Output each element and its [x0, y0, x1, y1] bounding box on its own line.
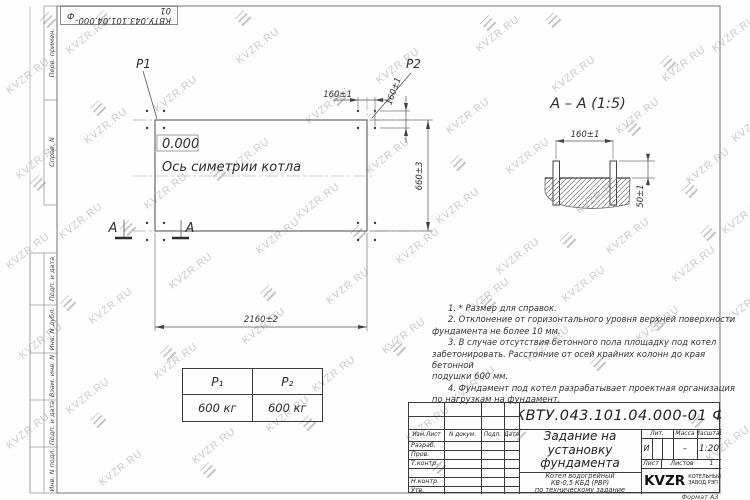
- note-line: 2. Отклонение от горизонтального уровня …: [432, 314, 738, 325]
- technical-notes: 1. * Размер для справок. 2. Отклонение о…: [432, 303, 738, 406]
- row-tkontr: Т.контр.: [411, 459, 444, 468]
- section-letter-right: А: [185, 221, 195, 236]
- row-prov: Пров.: [411, 450, 444, 459]
- doc-title-line3: фундамента: [519, 457, 641, 471]
- elevation-value: 0.000: [162, 137, 199, 152]
- rotated-doc-number-stamp: КВТУ.043.101.04.000-01 Ф: [60, 6, 178, 25]
- stamp-doc-number: КВТУ.043.101.04.000-01: [74, 6, 171, 26]
- company-sub2: ЗАВОД РЭП: [688, 481, 721, 487]
- load-table: P₁ P₂ 600 кг 600 кг: [182, 368, 323, 422]
- anchor-bolt-points: [146, 110, 376, 241]
- dim-bolt-x-text: 160±1: [323, 90, 352, 100]
- row-razrab: Разраб.: [411, 441, 444, 450]
- doc-title: Задание на установку фундамента: [519, 430, 641, 472]
- section-view: А – А (1:5) 160±1: [545, 96, 655, 208]
- section-dim-height-text: 50±1: [636, 184, 646, 207]
- note-line: 3. В случае отсутствия бетонного пола пл…: [432, 337, 738, 348]
- load-leaders: [143, 71, 411, 119]
- lit-value: И: [641, 438, 652, 459]
- sheets-value: 1: [702, 459, 721, 468]
- note-line: 1. * Размер для справок.: [432, 303, 738, 314]
- margin-label-podp-data-2: Подп. и дата: [48, 401, 56, 445]
- row-nkontr: Н.контр.: [411, 477, 444, 486]
- mass-value: –: [673, 438, 697, 459]
- note-line: забетонировать. Расстояние от осей крайн…: [432, 349, 738, 372]
- margin-label-vzam-inv: Взам. инв. N: [48, 355, 56, 397]
- section-title: А – А (1:5): [549, 96, 626, 112]
- dim-bolt-y-text: 160±1: [385, 76, 404, 106]
- plan-view: P1 P2 0.000 Ось симетрии котла 2160±2: [108, 57, 433, 331]
- scale-label: Масштаб: [697, 429, 721, 438]
- rev-col-podp: Подп.: [481, 429, 504, 441]
- margin-label-inv-dubl: Инв. N дубл.: [48, 308, 56, 351]
- section-dim-spacing-lines: [556, 140, 613, 159]
- note-line: подушки 600 мм.: [432, 371, 738, 382]
- rev-col-data: Дата: [504, 429, 519, 441]
- mass-label: Масса: [673, 429, 697, 438]
- drawing-sheet: KVZR.RUKVZR.RUKVZR.RUKVZR.RUKVZR.RUKVZR.…: [0, 0, 750, 500]
- margin-labels: Перв. примен. Справ. N Подп. и дата Инв.…: [48, 29, 56, 492]
- title-block: Изм.Лист N докум. Подп. Дата Разраб. Про…: [408, 402, 720, 493]
- section-letter-left: А: [108, 221, 118, 236]
- doc-number: КВТУ.043.101.04.000-01 Ф: [519, 403, 721, 429]
- note-line: 4. Фундамент под котел разрабатывает про…: [432, 383, 738, 394]
- load-p1-label: P1: [136, 57, 151, 71]
- company-name: KVZR: [644, 473, 685, 489]
- dim-width-text: 2160±2: [244, 315, 278, 325]
- doc-title-line1: Задание на: [519, 430, 641, 444]
- company-logo-cell: KVZR КОТЕЛЬНЫЙ ЗАВОД РЭП: [641, 468, 721, 494]
- scale-value: 1:20: [697, 438, 721, 459]
- margin-label-sprav-n: Справ. N: [48, 137, 56, 167]
- margin-label-perv-primen: Перв. примен.: [48, 29, 56, 78]
- doc-title-line2: установку: [519, 444, 641, 458]
- row-utv: Утв.: [411, 486, 444, 494]
- sheets-label: Листов: [662, 459, 702, 468]
- lit-label: Лит.: [641, 429, 673, 438]
- load-table-header-p1: P₁: [183, 369, 253, 395]
- section-dim-spacing-text: 160±1: [571, 130, 600, 140]
- load-table-value-p2: 600 кг: [253, 395, 323, 421]
- stamp-letter: Ф: [67, 11, 74, 21]
- doc-subtitle: Котел водогрейный КВ-0,5 КБД (РВР) по те…: [519, 473, 641, 494]
- boiler-axis-label: Ось симетрии котла: [162, 160, 301, 175]
- load-table-value-p1: 600 кг: [183, 395, 253, 421]
- sheet-label: Лист: [641, 459, 661, 468]
- format-note: Формат А3: [640, 493, 750, 500]
- dim-height-text: 660±3: [415, 162, 425, 191]
- margin-label-podp-data-1: Подп. и дата: [48, 257, 56, 301]
- load-table-header-p2: P₂: [253, 369, 323, 395]
- note-line: фундамента не более 10 мм.: [432, 326, 738, 337]
- section-cut-marks: А А: [108, 220, 195, 238]
- rev-col-izm-list: Изм.Лист: [409, 429, 444, 441]
- margin-label-inv-podl: Инв. N подл.: [48, 449, 56, 492]
- load-p2-label: P2: [406, 57, 421, 71]
- doc-subtitle-line3: по техническому задание: [519, 487, 641, 494]
- rev-col-n-dokum: N докум.: [444, 429, 481, 441]
